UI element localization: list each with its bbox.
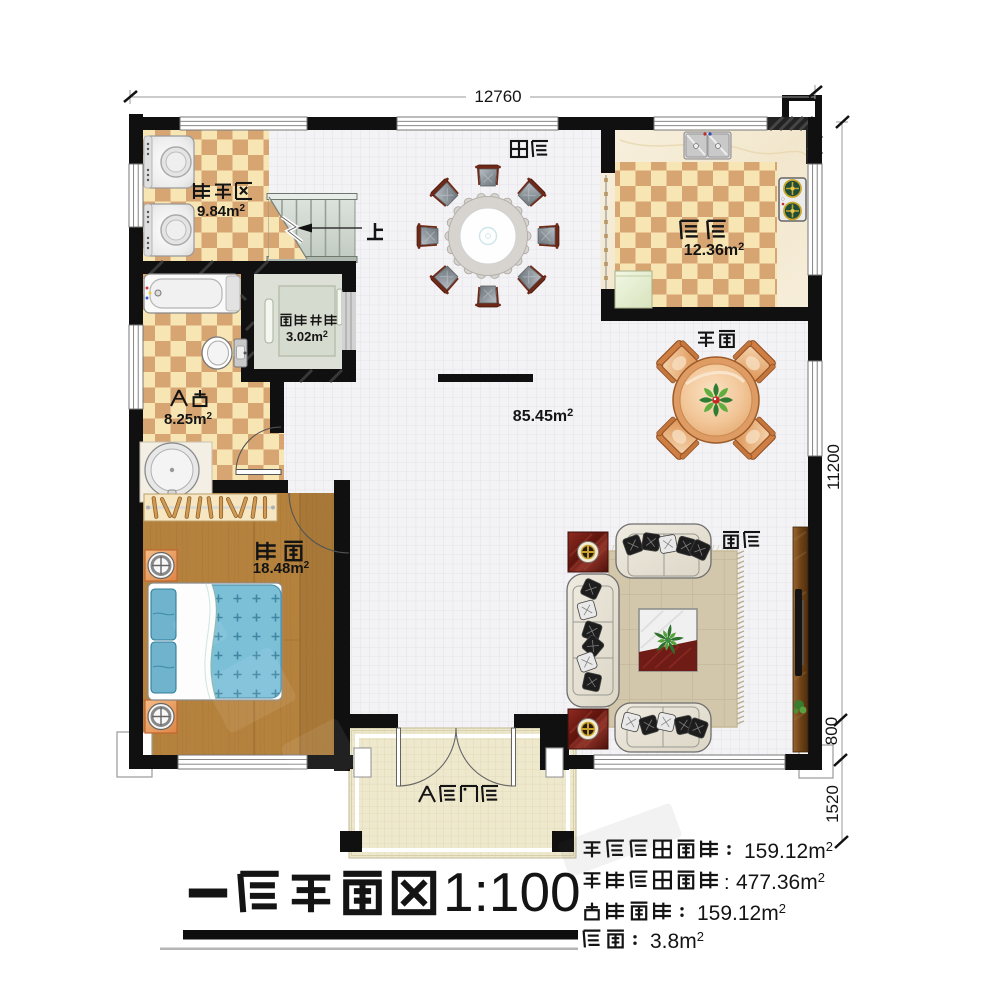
svg-text:12.36m2: 12.36m2 [684, 241, 744, 259]
svg-text:477.36m2: 477.36m2 [736, 870, 825, 894]
svg-text:18.48m2: 18.48m2 [253, 560, 310, 577]
svg-text:1:100: 1:100 [443, 861, 581, 923]
svg-text:9.84m2: 9.84m2 [197, 203, 246, 220]
svg-text:800: 800 [822, 717, 841, 745]
svg-text:3.02m2: 3.02m2 [286, 329, 328, 344]
svg-text:11200: 11200 [824, 444, 843, 490]
svg-text::: : [724, 872, 730, 894]
svg-text:85.45m2: 85.45m2 [513, 407, 573, 425]
svg-text:12760: 12760 [474, 87, 521, 106]
svg-text:3.8m2: 3.8m2 [650, 929, 704, 953]
svg-text:1520: 1520 [823, 785, 842, 823]
svg-text:159.12m2: 159.12m2 [697, 901, 786, 925]
svg-text:159.12m2: 159.12m2 [744, 839, 833, 863]
svg-text:8.25m2: 8.25m2 [164, 411, 213, 428]
